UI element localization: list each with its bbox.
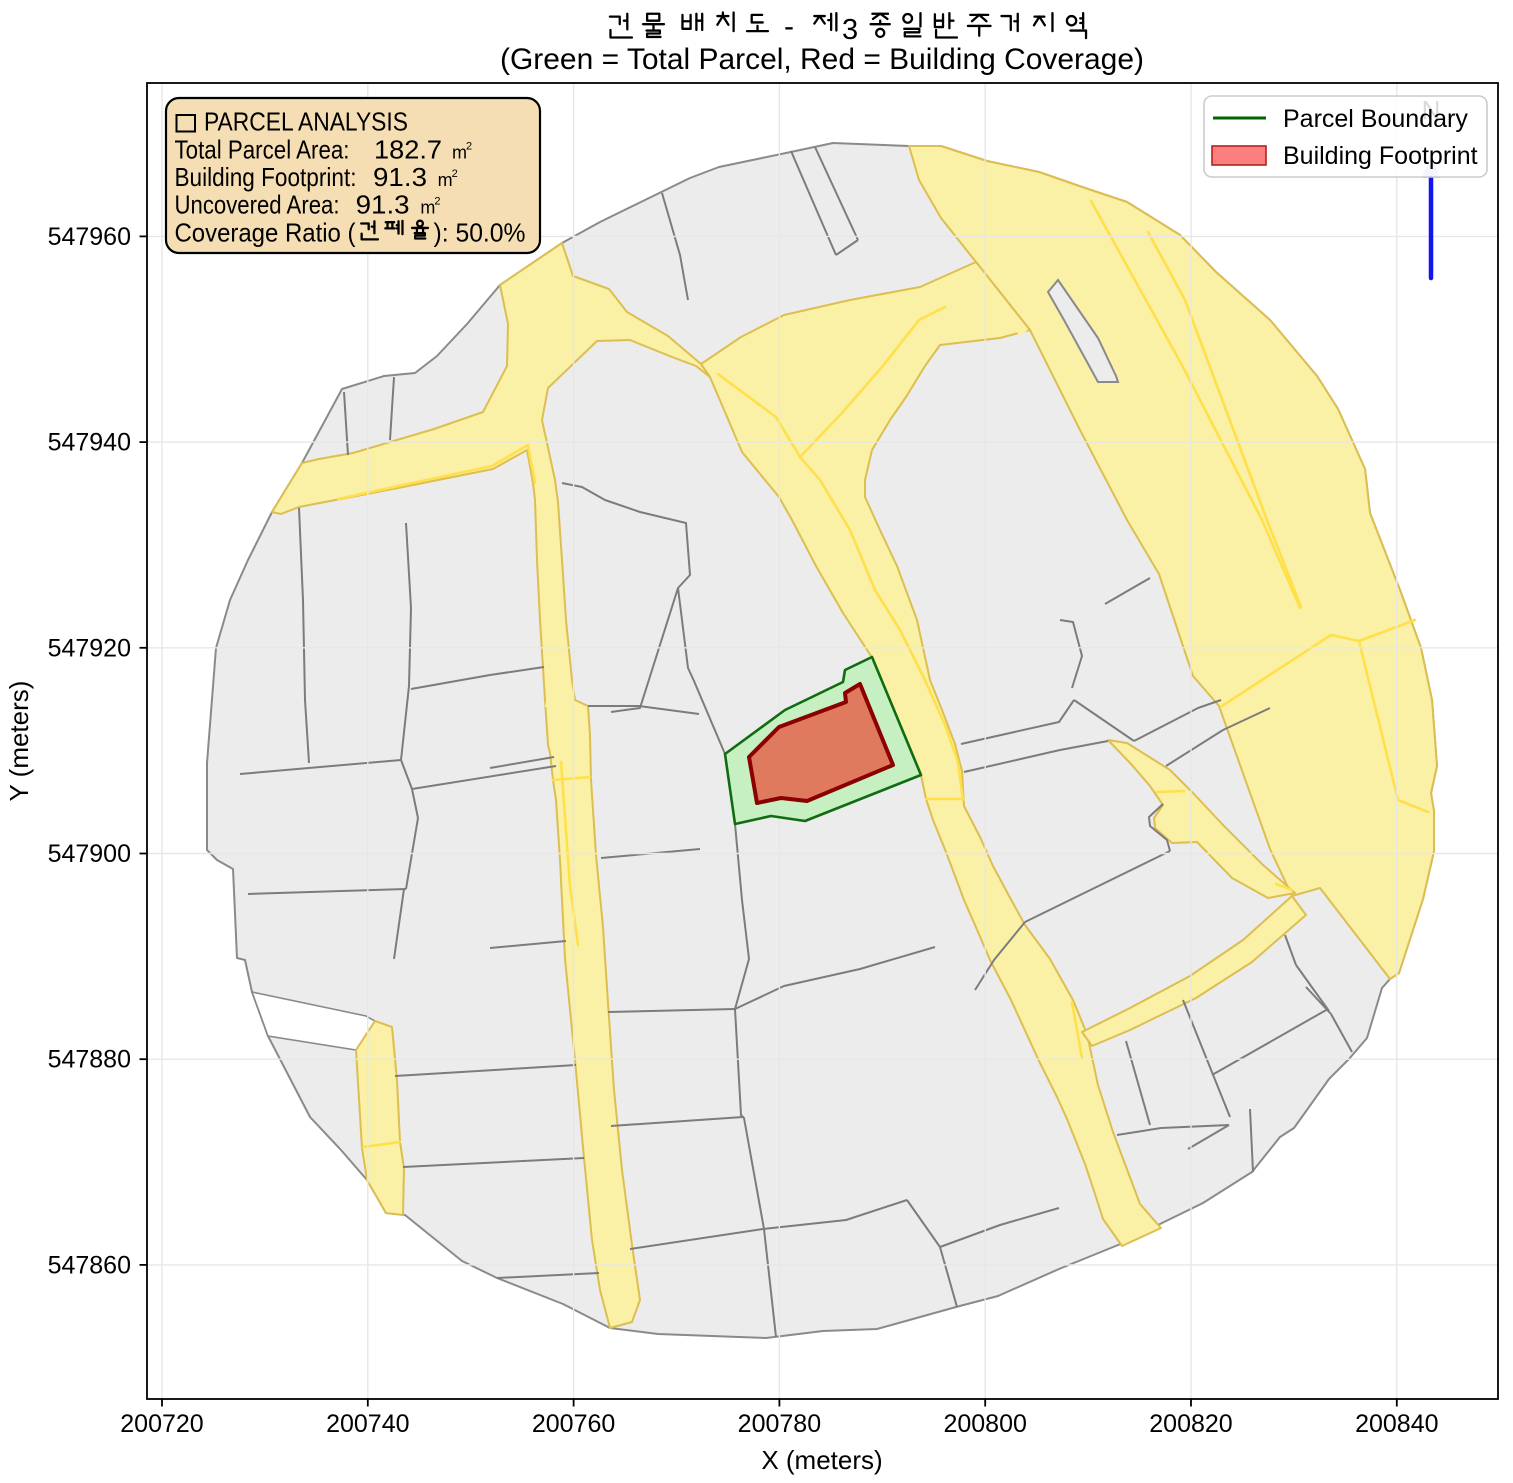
svg-text:547960: 547960 bbox=[48, 223, 131, 251]
svg-text:X (meters): X (meters) bbox=[761, 1445, 882, 1475]
svg-text:200740: 200740 bbox=[326, 1410, 409, 1438]
svg-text:200780: 200780 bbox=[738, 1410, 821, 1438]
svg-text:200720: 200720 bbox=[120, 1410, 203, 1438]
svg-text:m: m bbox=[420, 198, 435, 218]
svg-text:): 50.0%: ): 50.0% bbox=[434, 217, 526, 247]
svg-text:Building Footprint: Building Footprint bbox=[1283, 142, 1478, 170]
svg-text:547920: 547920 bbox=[48, 634, 131, 662]
svg-text:200840: 200840 bbox=[1355, 1410, 1438, 1438]
svg-text:200820: 200820 bbox=[1149, 1410, 1232, 1438]
svg-text:Parcel Boundary: Parcel Boundary bbox=[1283, 105, 1468, 133]
svg-text:m: m bbox=[452, 142, 467, 162]
svg-text:Uncovered Area:: Uncovered Area: bbox=[175, 190, 340, 220]
svg-text:547880: 547880 bbox=[48, 1046, 131, 1074]
svg-text:182.7: 182.7 bbox=[374, 134, 442, 164]
svg-text:Building Footprint:: Building Footprint: bbox=[175, 162, 357, 192]
svg-text:91.3: 91.3 bbox=[373, 162, 427, 192]
svg-text:-: - bbox=[784, 10, 794, 43]
svg-text:2: 2 bbox=[434, 196, 440, 208]
svg-text:m: m bbox=[438, 170, 453, 190]
svg-text:547900: 547900 bbox=[48, 840, 131, 868]
svg-text:3: 3 bbox=[842, 14, 858, 46]
svg-text:PARCEL ANALYSIS: PARCEL ANALYSIS bbox=[204, 107, 408, 137]
svg-text:547860: 547860 bbox=[48, 1251, 131, 1279]
svg-text:200760: 200760 bbox=[532, 1410, 615, 1438]
svg-text:(Green = Total Parcel, Red = B: (Green = Total Parcel, Red = Building Co… bbox=[500, 43, 1144, 76]
svg-text:2: 2 bbox=[466, 140, 472, 152]
svg-text:91.3: 91.3 bbox=[356, 190, 410, 220]
svg-text:547940: 547940 bbox=[48, 429, 131, 457]
svg-text:200800: 200800 bbox=[943, 1410, 1026, 1438]
svg-text:Y (meters): Y (meters) bbox=[4, 681, 34, 802]
svg-text:2: 2 bbox=[452, 168, 458, 180]
svg-text:Coverage Ratio (: Coverage Ratio ( bbox=[175, 217, 356, 247]
svg-text:Total Parcel Area:: Total Parcel Area: bbox=[175, 134, 350, 164]
